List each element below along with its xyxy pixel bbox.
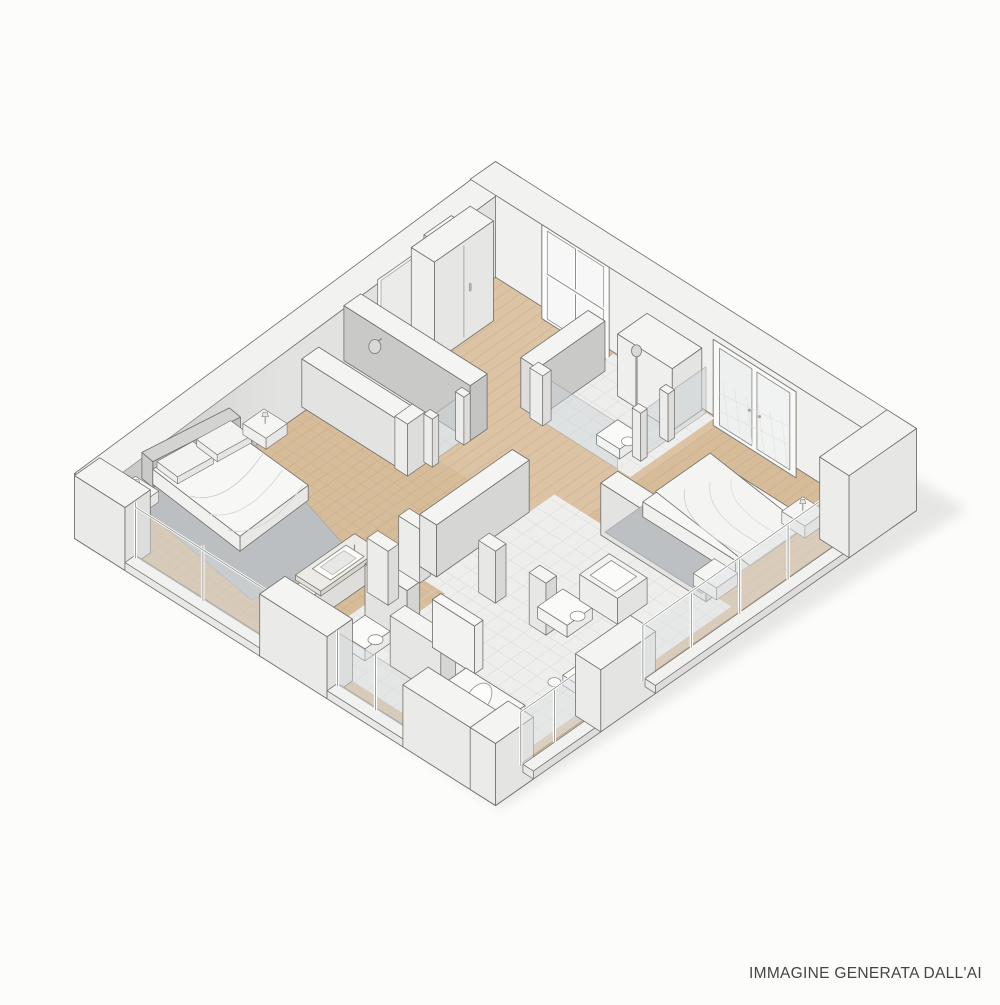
svg-text:IMMAGINE GENERATA DALL'AI: IMMAGINE GENERATA DALL'AI	[749, 965, 982, 982]
